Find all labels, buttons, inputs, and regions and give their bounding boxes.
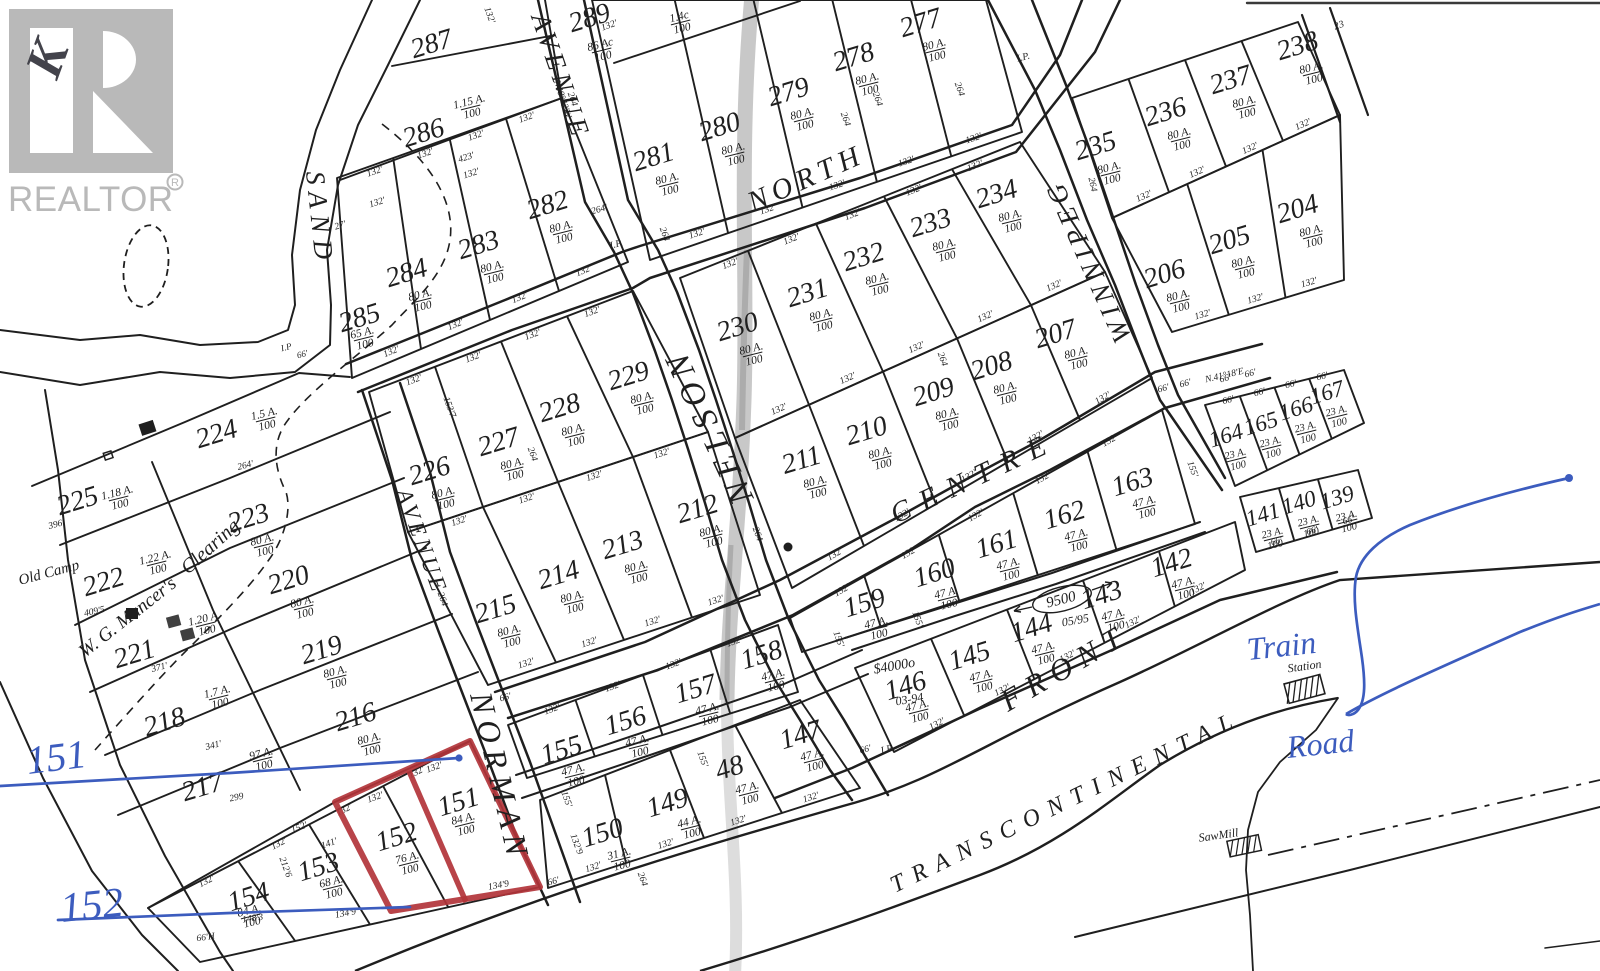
svg-text:Train: Train bbox=[1245, 624, 1318, 667]
svg-text:151: 151 bbox=[24, 731, 89, 783]
svg-text:Road: Road bbox=[1284, 722, 1357, 765]
svg-text:152: 152 bbox=[58, 880, 125, 932]
svg-text:R: R bbox=[171, 177, 179, 189]
svg-text:REALTOR: REALTOR bbox=[8, 180, 174, 219]
